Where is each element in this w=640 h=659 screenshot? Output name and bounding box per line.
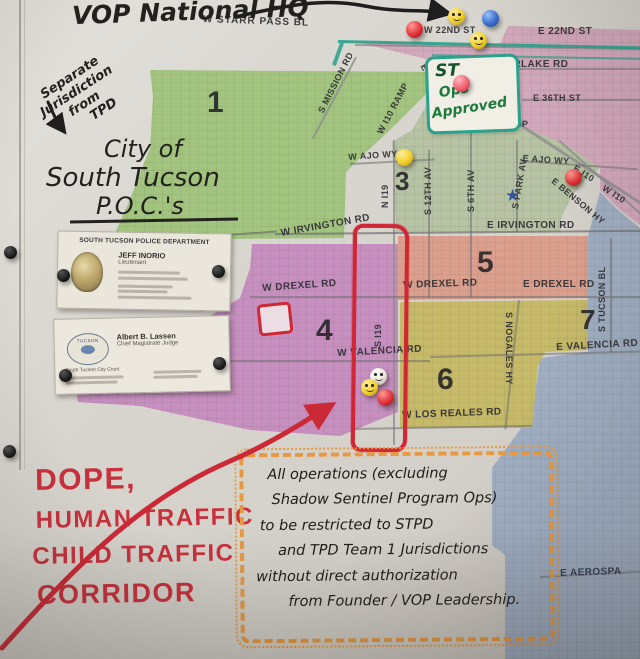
district-number-6: 6 <box>437 363 454 397</box>
note-line4: and TPD Team 1 Jurisdictions <box>278 537 546 565</box>
star-marker-icon: ★ <box>505 186 520 206</box>
red-warning-line2: HUMAN TRAFFIC <box>35 499 254 539</box>
street-label: S 12TH AV <box>423 167 433 215</box>
pushpin-red[interactable] <box>406 21 423 38</box>
road-tucson-bl <box>610 238 612 352</box>
separate-jurisdiction-annotation: Separate Jurisdiction from TPD <box>30 51 132 146</box>
red-warning-annotation: DOPE, HUMAN TRAFFIC CHILD TRAFFIC CORRID… <box>35 454 256 615</box>
police-card-address-lines <box>118 271 192 281</box>
judge-card-phone-lines <box>153 367 201 382</box>
sheet-edge-line-2 <box>24 0 25 470</box>
pushpin-black[interactable] <box>57 269 70 282</box>
police-card-department: SOUTH TUCSON POLICE DEPARTMENT <box>58 237 230 247</box>
city-poc-line1: City of <box>104 136 220 164</box>
judge-card-address-lines: South Tucson City Court <box>65 366 123 387</box>
street-label: N I19 <box>380 184 390 208</box>
red-warning-line1: DOPE, <box>35 454 254 503</box>
sheet-edge-line <box>19 0 21 470</box>
street-label: E AEROSPA <box>560 566 622 579</box>
pushpin-black[interactable] <box>213 357 226 370</box>
city-poc-line2: South Tucson <box>46 164 220 194</box>
pushpin-yellow-smiley[interactable] <box>448 8 465 25</box>
road-6th-av <box>470 132 472 298</box>
judge-business-card[interactable]: TUCSON Albert B. Lassen Chief Magistrate… <box>53 315 231 395</box>
street-label: S NOGALES HY <box>504 312 514 385</box>
street-label: E 36TH ST <box>533 93 581 103</box>
road-drexel <box>250 296 640 298</box>
pushpin-red[interactable] <box>377 389 394 406</box>
pushpin-black[interactable] <box>3 445 16 458</box>
police-badge-icon <box>71 252 104 293</box>
pushpin-yellow[interactable] <box>396 149 413 166</box>
red-corridor-outline <box>351 224 409 453</box>
pushpin-black[interactable] <box>212 265 225 278</box>
police-business-card[interactable]: SOUTH TUCSON POLICE DEPARTMENT JEFF INOR… <box>56 230 231 311</box>
red-warning-line3: CHILD TRAFFIC <box>32 535 255 575</box>
district-number-5: 5 <box>477 246 494 280</box>
pushpin-black[interactable] <box>4 246 17 259</box>
street-label: E IRVINGTON RD <box>487 220 574 231</box>
pushpin-black[interactable] <box>59 369 72 382</box>
note-line5: without direct authorization <box>256 562 546 590</box>
pushpin-yellow-smiley[interactable] <box>361 379 378 396</box>
district-number-4: 4 <box>316 314 333 348</box>
small-red-box-marker <box>256 301 293 336</box>
city-seal-graphic <box>81 345 95 354</box>
street-label: S TUCSON BL <box>597 267 607 332</box>
judge-card-org: South Tucson City Court <box>65 366 123 373</box>
city-seal-icon: TUCSON <box>67 333 110 366</box>
street-label: E 22ND ST <box>538 26 592 37</box>
pushpin-red[interactable] <box>565 169 582 186</box>
police-card-phone-lines <box>118 284 192 299</box>
city-poc-annotation: City of South Tucson P.O.C.'s <box>46 136 220 221</box>
st-ops-approved-note: ST Ops Approved <box>425 53 522 134</box>
map-photo: W STARR PASS BL W 22ND ST E 22ND ST E SI… <box>0 0 640 659</box>
note-line2: Shadow Sentinel Program Ops) <box>271 486 545 514</box>
street-label: S 6TH AV <box>466 169 476 212</box>
street-label: E DREXEL RD <box>523 279 594 290</box>
pushpin-yellow-smiley[interactable] <box>470 32 487 49</box>
district-number-7: 7 <box>580 304 596 336</box>
police-card-title: Lieutenant <box>118 260 192 267</box>
city-seal-text: TUCSON <box>68 338 108 344</box>
note-line6: from Founder / VOP Leadership. <box>288 588 546 616</box>
judge-card-title: Chief Magistrate Judge <box>117 340 179 347</box>
red-warning-line4: CORRIDOR <box>37 571 256 615</box>
note-line1: All operations (excluding <box>267 461 545 489</box>
ops-restriction-note: All operations (excluding Shadow Sentine… <box>239 451 555 644</box>
district-number-3: 3 <box>395 166 409 197</box>
pushpin-blue[interactable] <box>482 10 499 27</box>
pushpin-pink[interactable] <box>453 75 470 92</box>
street-label: W 22ND ST <box>424 25 476 35</box>
note-line3: to be restricted to STPD <box>260 511 546 539</box>
city-poc-line3: P.O.C.'s <box>96 193 220 221</box>
district-number-1: 1 <box>207 86 224 120</box>
